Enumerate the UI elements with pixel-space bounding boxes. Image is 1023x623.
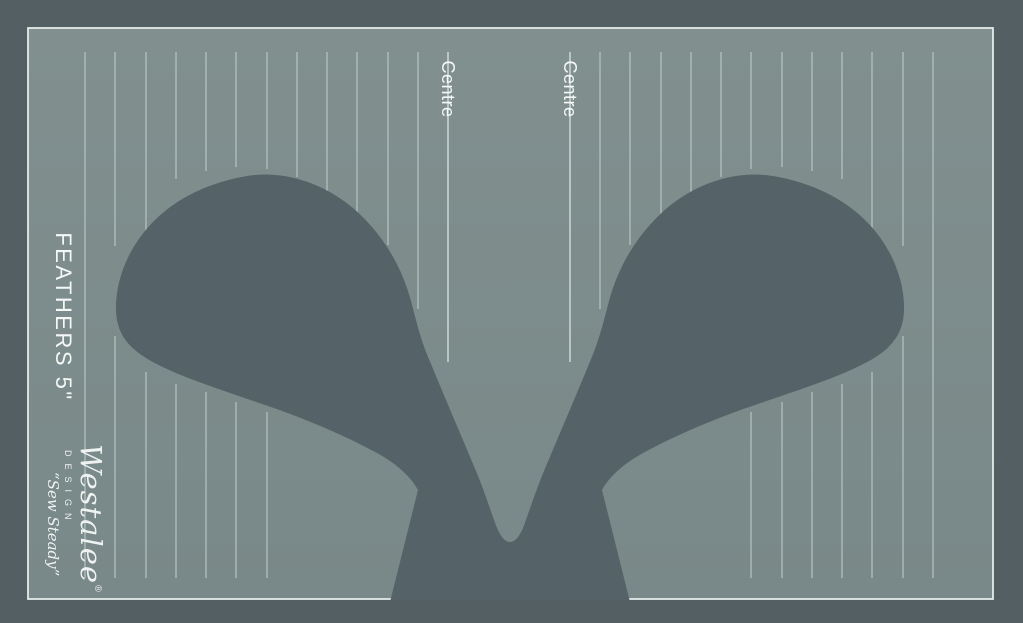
template-graphic [0,0,1023,623]
quilting-template-photo: FEATHERS 5" Centre Centre Westalee® DESI… [0,0,1023,623]
bottom-mat-strip [0,600,1023,623]
